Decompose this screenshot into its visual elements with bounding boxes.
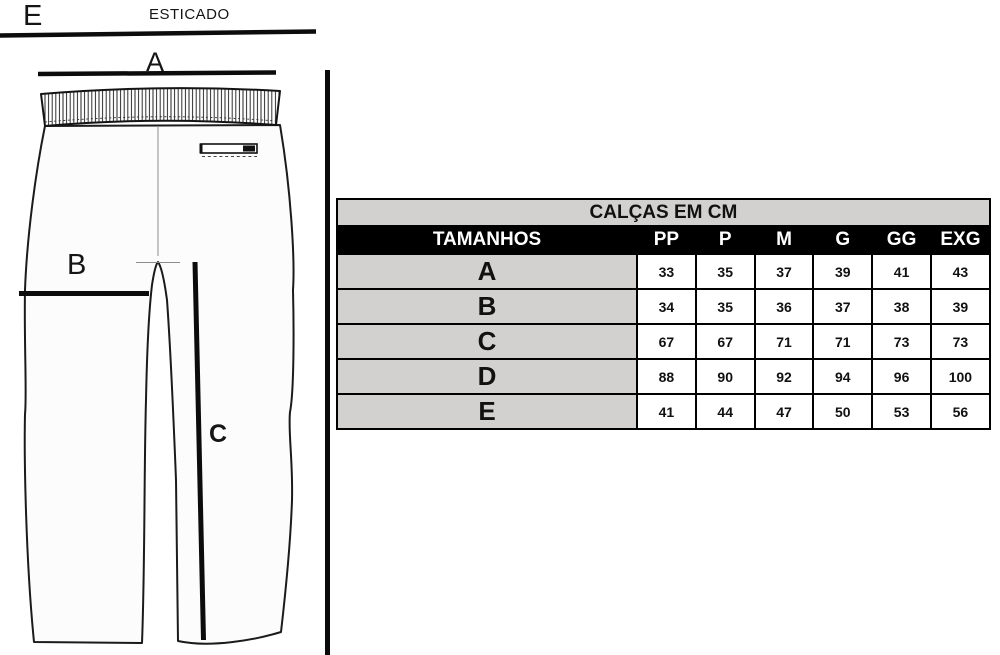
cell-c-pp: 67: [637, 324, 696, 359]
cell-b-gg: 38: [872, 289, 931, 324]
table-title: CALÇAS EM CM: [337, 199, 990, 226]
cell-c-exg: 73: [931, 324, 990, 359]
cell-d-m: 92: [755, 359, 814, 394]
size-chart-page: E ESTICADO A B C CALÇAS EM CM TAMANHOS P…: [0, 0, 1000, 655]
size-header-m: M: [755, 226, 814, 254]
table-row: D 88 90 92 94 96 100: [337, 359, 990, 394]
cell-c-p: 67: [696, 324, 755, 359]
cell-b-p: 35: [696, 289, 755, 324]
measure-label-b: B: [67, 251, 86, 280]
table-title-row: CALÇAS EM CM: [337, 199, 990, 226]
cell-d-gg: 96: [872, 359, 931, 394]
size-header-pp: PP: [637, 226, 696, 254]
size-header-g: G: [813, 226, 872, 254]
cell-d-exg: 100: [931, 359, 990, 394]
stretched-caption: ESTICADO: [149, 7, 230, 22]
row-label-e: E: [337, 394, 637, 429]
row-label-b: B: [337, 289, 637, 324]
row-label-d: D: [337, 359, 637, 394]
row-label-a: A: [337, 254, 637, 289]
table-row: C 67 67 71 71 73 73: [337, 324, 990, 359]
pants-technical-drawing: [0, 0, 340, 655]
table-header-row: TAMANHOS PP P M G GG EXG: [337, 226, 990, 254]
size-header-p: P: [696, 226, 755, 254]
measure-line-e-stretched: [0, 32, 316, 36]
cell-b-pp: 34: [637, 289, 696, 324]
cell-e-pp: 41: [637, 394, 696, 429]
cell-e-gg: 53: [872, 394, 931, 429]
measure-label-c: C: [209, 422, 227, 447]
cell-a-m: 37: [755, 254, 814, 289]
cell-c-m: 71: [755, 324, 814, 359]
cell-b-m: 36: [755, 289, 814, 324]
cell-b-exg: 39: [931, 289, 990, 324]
table-row: B 34 35 36 37 38 39: [337, 289, 990, 324]
cell-e-g: 50: [813, 394, 872, 429]
cell-b-g: 37: [813, 289, 872, 324]
cell-d-g: 94: [813, 359, 872, 394]
cell-c-g: 71: [813, 324, 872, 359]
cell-d-p: 90: [696, 359, 755, 394]
cell-c-gg: 73: [872, 324, 931, 359]
table-row: A 33 35 37 39 41 43: [337, 254, 990, 289]
cell-e-p: 44: [696, 394, 755, 429]
size-table: CALÇAS EM CM TAMANHOS PP P M G GG EXG A …: [336, 198, 991, 430]
row-label-c: C: [337, 324, 637, 359]
cell-d-pp: 88: [637, 359, 696, 394]
cell-a-pp: 33: [637, 254, 696, 289]
measure-label-a: A: [146, 49, 164, 76]
pants-body-outline: [25, 125, 294, 644]
size-header-exg: EXG: [931, 226, 990, 254]
waistband: [41, 88, 280, 126]
cell-a-gg: 41: [872, 254, 931, 289]
cell-e-exg: 56: [931, 394, 990, 429]
stretch-letter-label: E: [23, 2, 42, 31]
table-row: E 41 44 47 50 53 56: [337, 394, 990, 429]
cell-a-g: 39: [813, 254, 872, 289]
size-header-gg: GG: [872, 226, 931, 254]
cell-a-p: 35: [696, 254, 755, 289]
cell-a-exg: 43: [931, 254, 990, 289]
cell-e-m: 47: [755, 394, 814, 429]
vertical-divider: [325, 70, 330, 655]
corner-header-tamanhos: TAMANHOS: [337, 226, 637, 254]
